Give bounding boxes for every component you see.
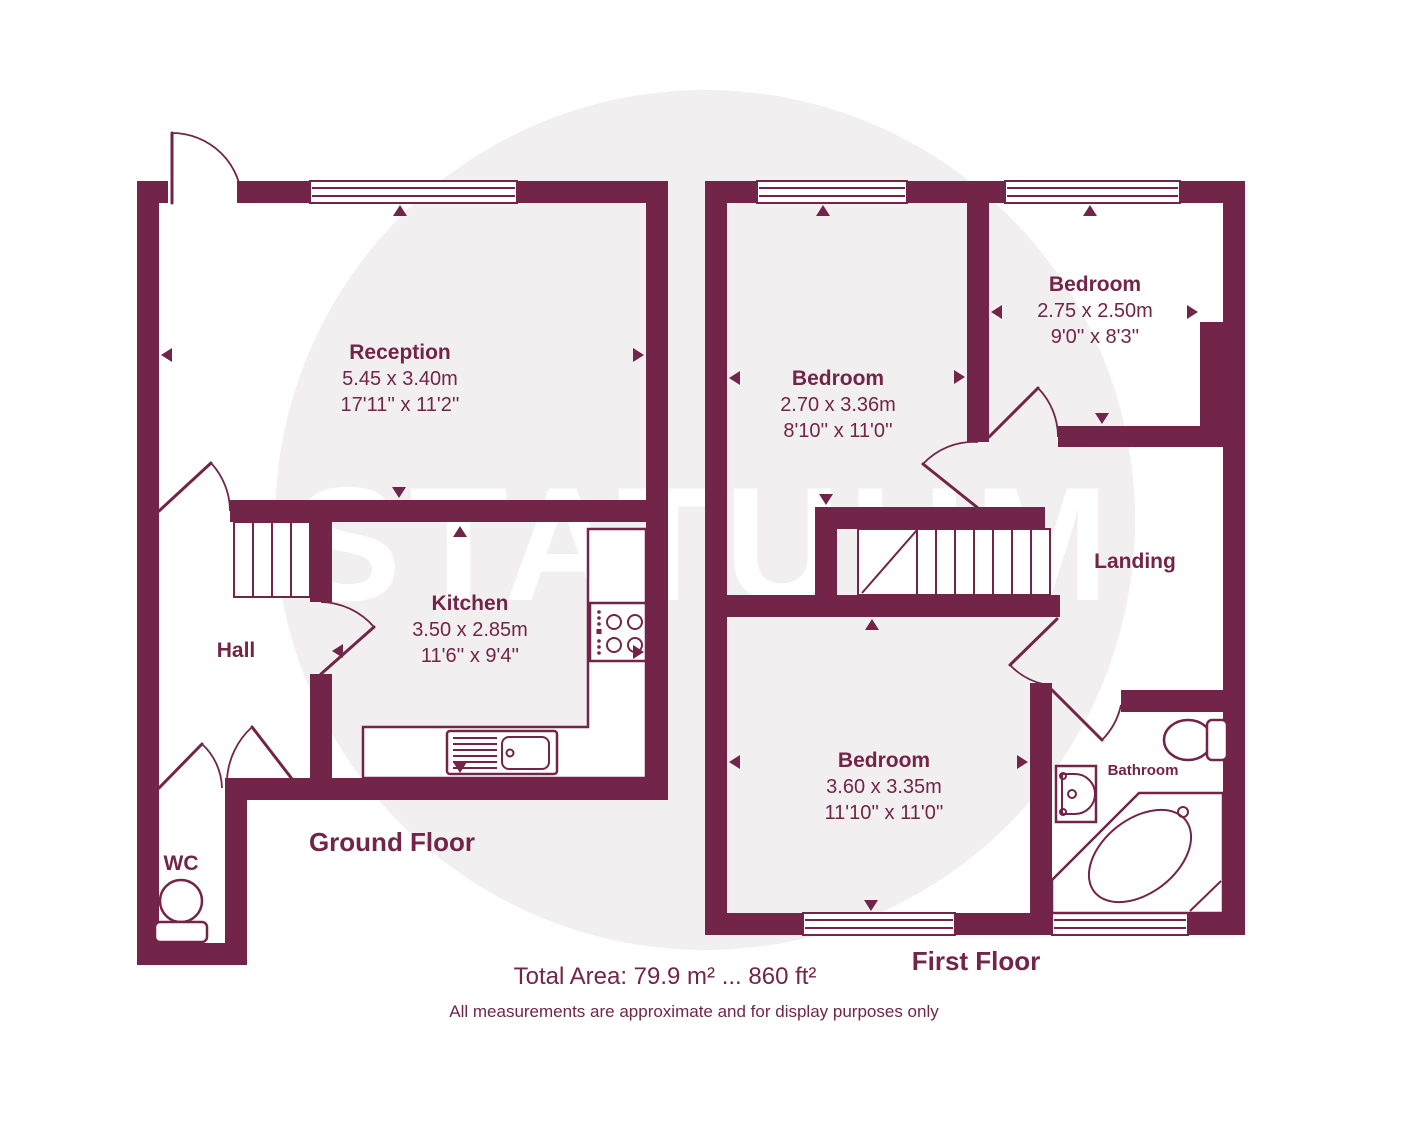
disclaimer-text: All measurements are approximate and for… (449, 1002, 938, 1022)
bedroom-right-label: Bedroom 2.75 x 2.50m 9'0'' x 8'3'' (1037, 272, 1153, 350)
first-floor-label: First Floor (912, 946, 1041, 977)
first-floor-stairs (858, 529, 1050, 595)
room-name: Bedroom (780, 366, 896, 392)
wall-segment (310, 522, 332, 602)
wall-segment (137, 943, 247, 965)
room-name: Landing (1094, 549, 1176, 575)
wall-segment (230, 500, 668, 522)
room-dim-metric: 3.50 x 2.85m (412, 617, 528, 643)
bedroom-left-window (757, 181, 907, 203)
room-dim-imperial: 9'0'' x 8'3'' (1037, 324, 1153, 350)
wall-segment (310, 778, 668, 800)
wall-segment (225, 778, 247, 965)
bathroom-label: Bathroom (1108, 762, 1179, 780)
bedroom-right-window (1005, 181, 1180, 203)
wall-segment (907, 181, 1005, 203)
room-dim-imperial: 8'10'' x 11'0'' (780, 418, 896, 444)
room-dim-metric: 5.45 x 3.40m (341, 366, 460, 392)
wall-segment (517, 181, 668, 203)
wall-segment (310, 674, 332, 778)
room-name: Bedroom (1037, 272, 1153, 298)
wall-segment (1030, 683, 1052, 913)
wc-label: WC (164, 851, 199, 877)
wall-segment (1188, 913, 1245, 935)
total-area-text: Total Area: 79.9 m² ... 860 ft² (514, 963, 817, 991)
ground-floor-stairs (234, 522, 310, 597)
room-name: Kitchen (412, 591, 528, 617)
wall-segment (137, 181, 159, 965)
room-dim-imperial: 17'11'' x 11'2'' (341, 392, 460, 418)
kitchen-label: Kitchen 3.50 x 2.85m 11'6'' x 9'4'' (412, 591, 528, 669)
wall-segment (1200, 322, 1225, 447)
kitchen-sink-icon (447, 731, 557, 774)
reception-hall-door (159, 463, 230, 511)
wc-toilet-icon (155, 880, 207, 942)
floorplan-canvas: STATUUM (0, 0, 1407, 1131)
room-name: Bathroom (1108, 762, 1179, 780)
wall-segment (955, 913, 1052, 935)
basin-icon (1056, 766, 1096, 822)
floorplan-drawing: STATUUM (0, 0, 1407, 1131)
wall-segment (815, 507, 1045, 529)
wall-segment (1121, 690, 1223, 712)
ground-floor-label: Ground Floor (309, 827, 475, 858)
reception-label: Reception 5.45 x 3.40m 17'11'' x 11'2'' (341, 340, 460, 418)
room-dim-metric: 2.75 x 2.50m (1037, 298, 1153, 324)
wall-segment (1058, 426, 1223, 447)
hall-label: Hall (217, 638, 256, 664)
wc-door (159, 744, 222, 788)
wall-segment (705, 181, 727, 935)
bedroom-bottom-window (803, 913, 955, 935)
room-dim-imperial: 11'10'' x 11'0'' (825, 800, 944, 826)
toilet-icon (1164, 720, 1227, 760)
room-name: WC (164, 851, 199, 877)
room-dim-metric: 2.70 x 3.36m (780, 392, 896, 418)
bedroom-left-label: Bedroom 2.70 x 3.36m 8'10'' x 11'0'' (780, 366, 896, 444)
wall-segment (967, 203, 989, 442)
entrance-door (172, 133, 242, 203)
room-dim-metric: 3.60 x 3.35m (825, 774, 944, 800)
wall-segment (237, 181, 310, 203)
wall-segment (705, 595, 1060, 617)
room-name: Bedroom (825, 748, 944, 774)
bathroom-window (1052, 913, 1188, 935)
wall-segment (1223, 181, 1245, 935)
bedroom-bottom-label: Bedroom 3.60 x 3.35m 11'10'' x 11'0'' (825, 748, 944, 826)
landing-label: Landing (1094, 549, 1176, 575)
room-name: Reception (341, 340, 460, 366)
room-dim-imperial: 11'6'' x 9'4'' (412, 643, 528, 669)
wall-segment (705, 913, 803, 935)
reception-window (310, 181, 517, 203)
room-name: Hall (217, 638, 256, 664)
